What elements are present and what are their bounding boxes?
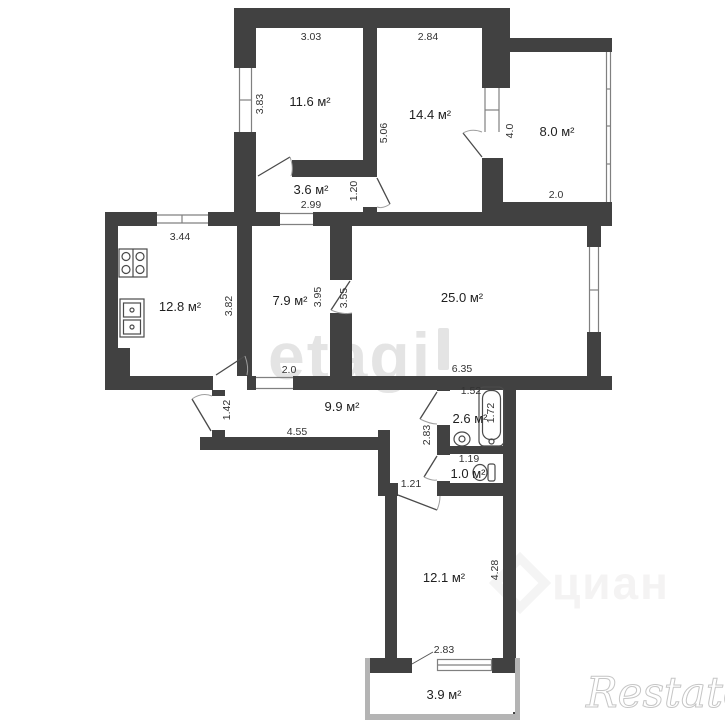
room-label-1-0: 1.0 м² — [451, 466, 487, 481]
walls — [105, 8, 612, 720]
window-room-8-0 — [485, 88, 499, 132]
dim-2-0-top: 2.0 — [549, 189, 564, 201]
dim-3-03: 3.03 — [301, 31, 322, 43]
room-label-9-9: 9.9 м² — [325, 399, 361, 414]
dim-3-55: 3.55 — [338, 288, 350, 309]
passage-threshold-corridor — [256, 378, 293, 389]
dim-2-99: 2.99 — [301, 199, 322, 211]
window-balcony — [438, 660, 492, 671]
floor-plan-svg: 11.6 м² 14.4 м² 8.0 м² 3.6 м² 12.8 м² 7.… — [0, 0, 725, 725]
room-label-11-6: 11.6 м² — [289, 94, 331, 109]
dim-2-83-bottom: 2.83 — [434, 644, 455, 656]
window-kitchen — [157, 215, 208, 223]
door-bathroom — [420, 392, 437, 424]
dim-3-44: 3.44 — [170, 231, 191, 243]
room-label-3-9: 3.9 м² — [427, 687, 463, 702]
kitchen-sink-icon — [120, 299, 144, 337]
dim-1-42: 1.42 — [221, 400, 233, 421]
door-entrance — [192, 395, 212, 431]
room-label-3-6: 3.6 м² — [294, 182, 330, 197]
stove-icon — [119, 249, 147, 277]
room-label-12-1: 12.1 м² — [423, 570, 466, 585]
window-room-11-6 — [240, 68, 252, 132]
dim-4-55: 4.55 — [287, 426, 308, 438]
room-label-8-0: 8.0 м² — [540, 124, 576, 139]
dim-2-83-vertical: 2.83 — [421, 425, 433, 446]
bathroom-sink-icon — [454, 432, 470, 446]
door-room-14-4 — [377, 178, 390, 208]
floor-plan-page: etagi циан Restate — [0, 0, 725, 725]
dim-5-06: 5.06 — [378, 123, 390, 144]
glazing-room-8-0 — [607, 52, 611, 202]
room-label-14-4: 14.4 м² — [409, 107, 452, 122]
dim-1-21: 1.21 — [401, 478, 422, 490]
dim-4-0: 4.0 — [504, 124, 516, 139]
dim-2-84: 2.84 — [418, 31, 439, 43]
dim-1-19: 1.19 — [459, 453, 480, 465]
dim-1-20: 1.20 — [348, 181, 360, 202]
passage-threshold-hall — [280, 214, 313, 225]
dim-1-52: 1.52 — [461, 385, 482, 397]
room-label-12-8: 12.8 м² — [159, 299, 202, 314]
door-wc — [424, 456, 437, 480]
door-room-11-6 — [258, 157, 292, 176]
door-room-12-1 — [398, 495, 440, 510]
dim-6-35: 6.35 — [452, 363, 473, 375]
window-living-room — [590, 247, 599, 332]
dim-3-95: 3.95 — [312, 287, 324, 308]
dim-3-82: 3.82 — [223, 296, 235, 317]
windows — [157, 52, 611, 671]
dim-1-72: 1.72 — [485, 403, 497, 424]
dim-2-0-mid: 2.0 — [282, 364, 297, 376]
dim-leader-balcony-door — [412, 652, 433, 664]
dim-3-83: 3.83 — [254, 94, 266, 115]
dim-4-28: 4.28 — [489, 560, 501, 581]
room-label-25-0: 25.0 м² — [441, 290, 484, 305]
room-label-7-9: 7.9 м² — [273, 293, 309, 308]
door-room-8-0 — [463, 130, 482, 157]
room-label-2-6: 2.6 м² — [453, 411, 489, 426]
